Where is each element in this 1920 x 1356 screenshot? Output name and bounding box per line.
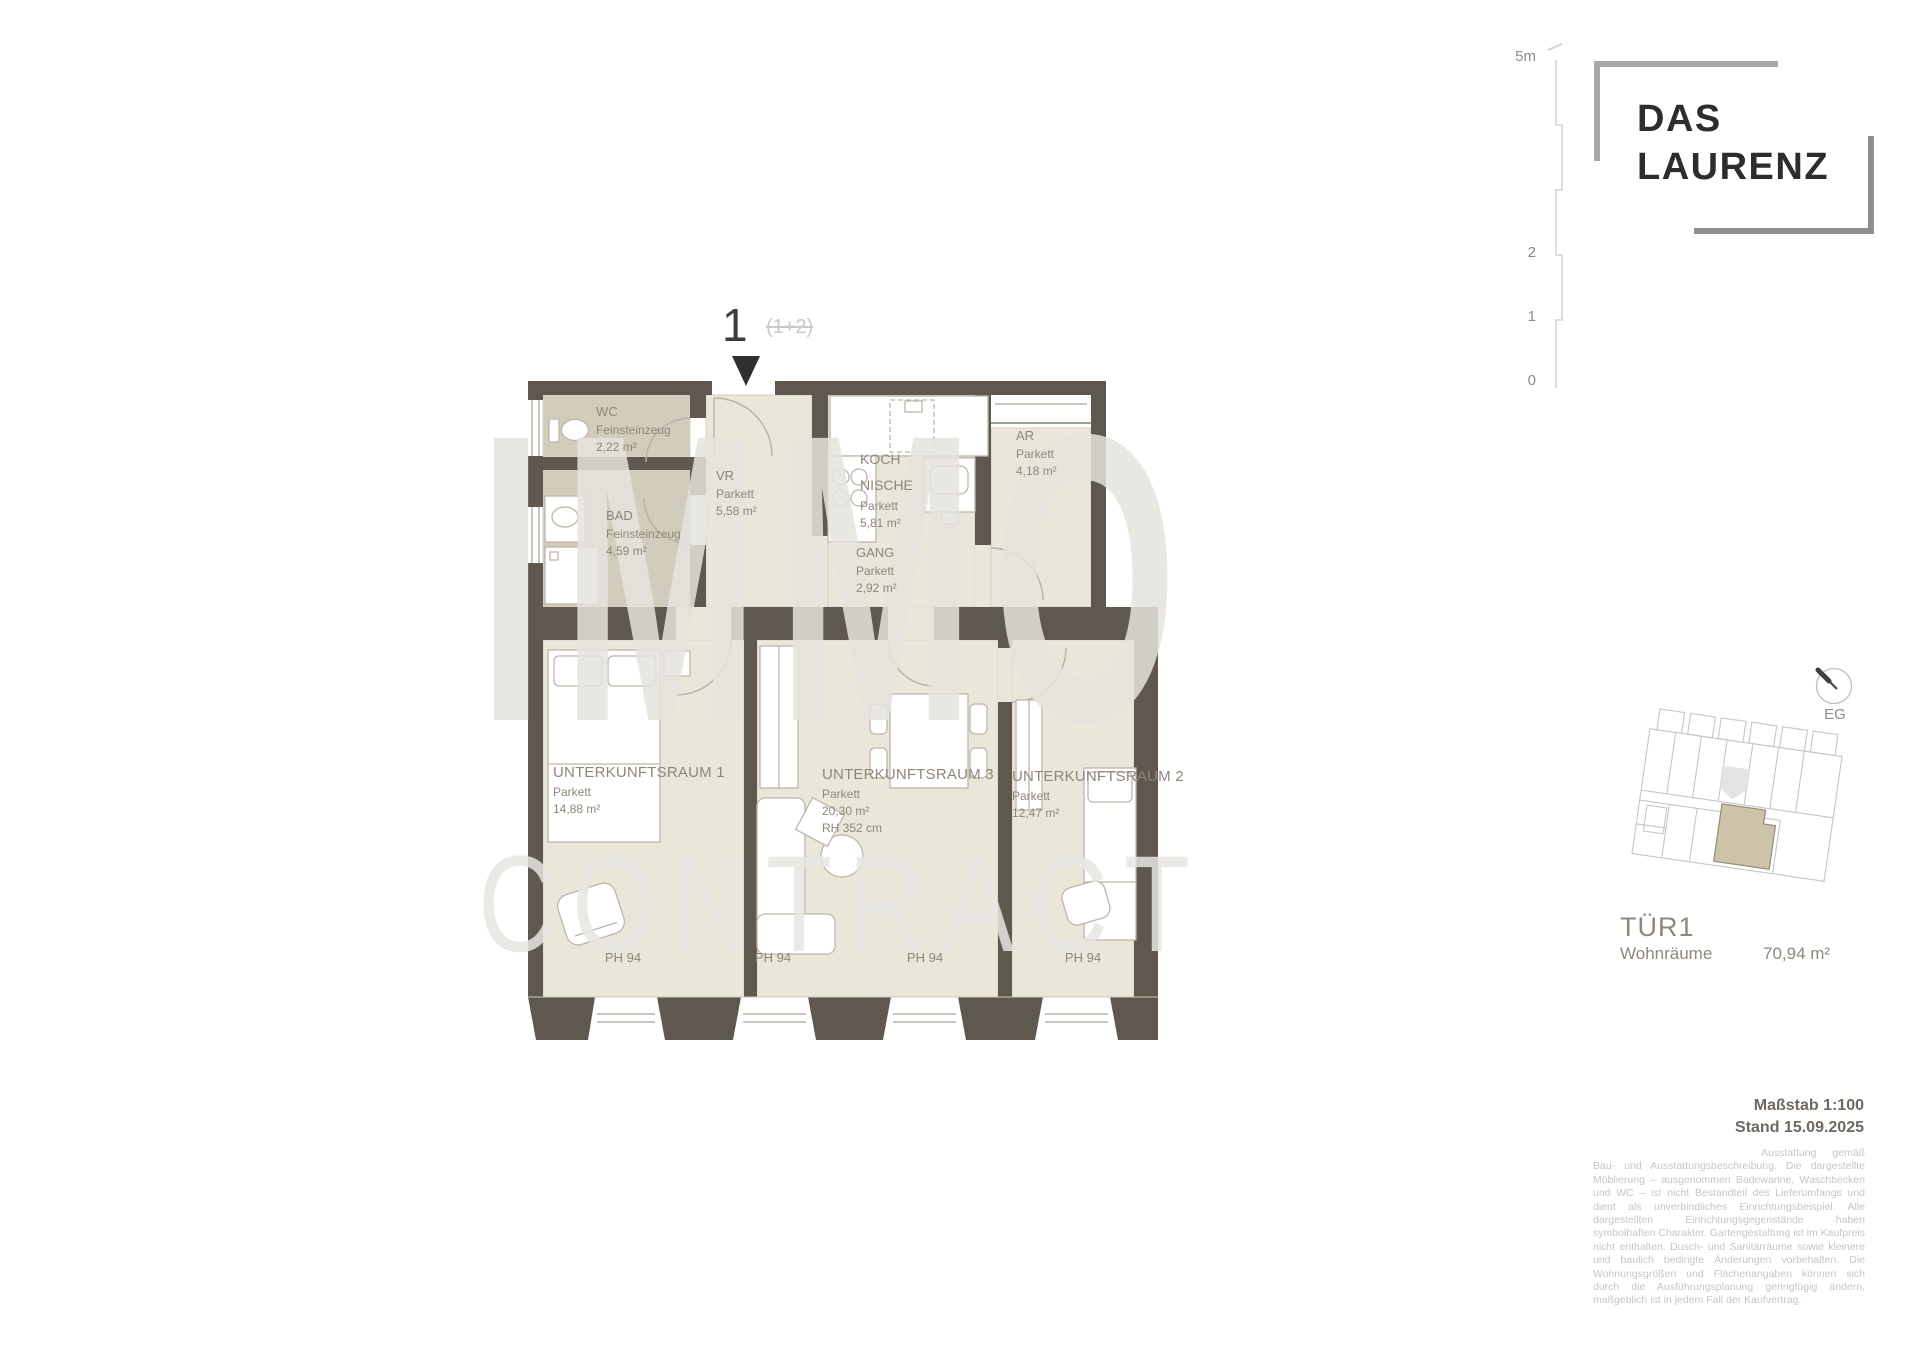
room-area: 20,30 m² [822,803,994,820]
unit-area-value: 70,94 m² [1763,944,1830,964]
room-label-unterkunftsraum-1: UNTERKUNFTSRAUM 1 Parkett 14,88 m² [553,762,725,818]
site-plan [1632,708,1845,881]
unit-area-label: Wohnräume [1620,944,1712,964]
room-label-kochnische: KOCH NISCHE Parkett 5,81 m² [860,446,932,532]
room-floor: Parkett [860,498,932,515]
unit-title: TÜR1 [1620,912,1695,943]
room-floor: Feinsteinzeug [606,526,681,543]
floorplan-page: IMMO CONTRACT 1 (1+2) WC Feinsteinzeug 2… [0,0,1920,1356]
compass-icon [1817,669,1852,704]
room-area: 12,47 m² [1012,805,1184,822]
room-area: 2,22 m² [596,439,671,456]
ruler-label-5m: 5m [1496,48,1536,65]
room-area: 14,88 m² [553,801,725,818]
highlighted-unit [1714,804,1778,869]
room-name: AR [1016,426,1057,446]
logo-line-1: DAS [1637,98,1722,141]
room-name: KOCH NISCHE [860,446,932,498]
room-label-unterkunftsraum-2: UNTERKUNFTSRAUM 2 Parkett 12,47 m² [1012,766,1184,822]
toilet-icon [549,419,589,442]
room-floor: Parkett [856,563,897,580]
room-label-wc: WC Feinsteinzeug 2,22 m² [596,402,671,456]
washbasin-icon [545,496,585,542]
room-floor: Parkett [1012,788,1184,805]
room-label-gang: GANG Parkett 2,92 m² [856,543,897,597]
scale-note: Maßstab 1:100 [1566,1097,1864,1115]
site-plan-stairwell [1719,766,1749,801]
room-label-ar: AR Parkett 4,18 m² [1016,426,1057,480]
entrance-arrow-icon [732,356,760,386]
room-height-note: RH 352 cm [822,820,994,837]
sill-label: PH 94 [738,950,808,965]
ruler-label-2: 2 [1496,244,1536,261]
entrance-number: 1 [722,298,748,352]
disclaimer-text: Ausstattung gemäß Bau- und Ausstattungsb… [1593,1147,1865,1308]
room-area: 4,18 m² [1016,463,1057,480]
room-floor: Parkett [1016,446,1057,463]
room-name: VR [716,466,757,486]
room-name: UNTERKUNFTSRAUM 1 [553,762,725,784]
floor-plan [528,356,1158,1040]
room-floor: Parkett [716,486,757,503]
room-area: 4,59 m² [606,543,681,560]
sill-label: PH 94 [588,950,658,965]
scale-ruler [1548,44,1562,388]
room-label-vr: VR Parkett 5,58 m² [716,466,757,520]
room-label-bad: BAD Feinsteinzeug 4,59 m² [606,506,681,560]
room-label-unterkunftsraum-3: UNTERKUNFTSRAUM 3 Parkett 20,30 m² RH 35… [822,764,994,837]
ruler-label-0: 0 [1496,372,1536,389]
room-name: WC [596,402,671,422]
room-area: 2,92 m² [856,580,897,597]
room-area: 5,58 m² [716,503,757,520]
room-floor: Parkett [822,786,994,803]
room-floor: Parkett [553,784,725,801]
entrance-alt-number: (1+2) [766,316,813,339]
ruler-label-1: 1 [1496,308,1536,325]
date-note: Stand 15.09.2025 [1566,1119,1864,1137]
room-name: UNTERKUNFTSRAUM 3 [822,764,994,786]
floor-level-label: EG [1820,706,1850,723]
sill-label: PH 94 [1048,950,1118,965]
room-area: 5,81 m² [860,515,932,532]
room-floor: Feinsteinzeug [596,422,671,439]
sill-label: PH 94 [890,950,960,965]
room-name: UNTERKUNFTSRAUM 2 [1012,766,1184,788]
shower-icon [545,547,599,604]
room-name: GANG [856,543,897,563]
sink-icon [930,466,968,494]
wardrobe-3-icon [760,646,798,788]
logo-line-2: LAURENZ [1637,146,1829,189]
room-name: BAD [606,506,681,526]
